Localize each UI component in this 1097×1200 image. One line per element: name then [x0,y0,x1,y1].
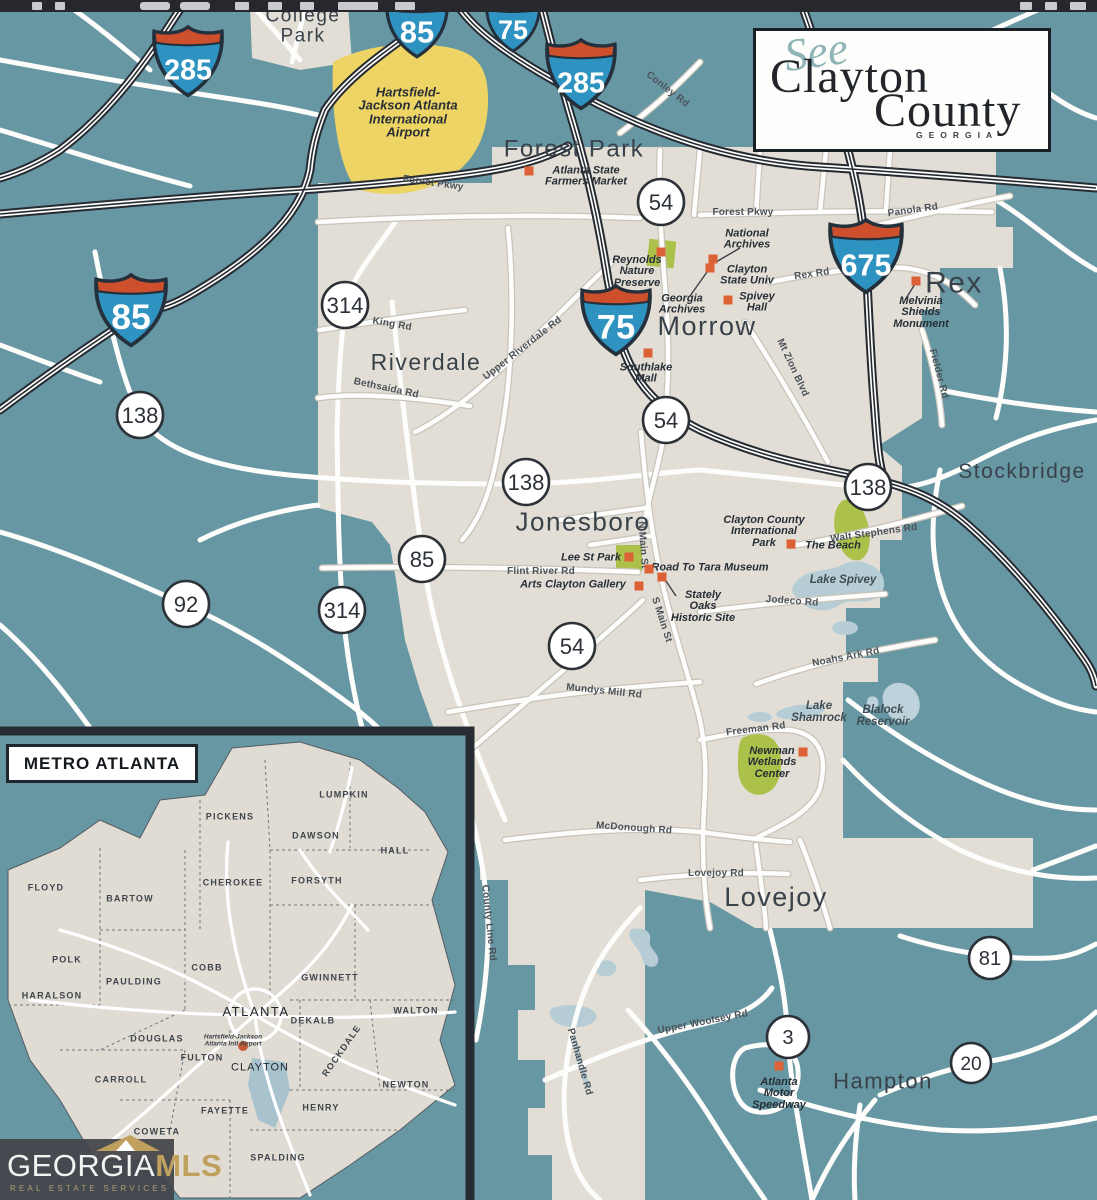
shield-number: 85 [111,297,151,337]
route-number: 20 [960,1054,981,1075]
inset-title: METRO ATLANTA [6,744,198,783]
state-route-shield-20: 20 [951,1043,991,1083]
status-icon [395,2,415,10]
interstate-shield-285: 285 [154,27,222,95]
status-icon [1020,2,1032,10]
clayton-county-logo: See Clayton County GEORGIA [753,28,1051,152]
brand-tagline: REAL ESTATE SERVICES [10,1184,169,1193]
state-route-shield-138: 138 [845,464,891,510]
state-route-shield-138: 138 [503,459,549,505]
lake-spivey-south [832,621,858,635]
status-icon [338,2,378,10]
state-route-shield-138: 138 [117,392,163,438]
shield-number: 75 [498,15,528,45]
shield-number: 285 [164,55,212,87]
route-number: 138 [850,475,887,500]
status-icon [32,2,42,10]
shield-number: 285 [557,68,605,100]
state-route-shield-3: 3 [767,1016,809,1058]
newman-wetlands-area [738,734,781,795]
inset-map [0,731,470,1200]
route-number: 92 [174,592,199,617]
route-number: 314 [324,598,361,623]
lake-shamrock-west [748,712,772,722]
route-number: 138 [122,403,159,428]
brand-name: GEORGIAMLS [7,1148,222,1184]
status-icon [235,2,249,10]
interstate-shield-285: 285 [547,40,615,108]
status-icon [55,2,65,10]
shield-number: 675 [841,248,892,282]
status-icon [180,2,210,10]
state-route-shield-314: 314 [322,282,368,328]
state-route-shield-54: 54 [549,623,595,669]
georgia-mls-logo: GEORGIAMLS REAL ESTATE SERVICES [0,1139,174,1200]
status-icon [300,2,314,10]
state-route-shield-314: 314 [319,587,365,633]
inset-airport-dot [238,1041,248,1051]
shield-number: 75 [597,309,635,347]
lee-st-park-area [616,545,642,571]
brand-georgia: GEORGIA [7,1148,155,1183]
status-icon [1045,2,1057,10]
logo-subtitle: GEORGIA [916,130,998,140]
brand-mls: MLS [155,1148,222,1183]
route-number: 81 [979,948,1001,970]
state-route-shield-54: 54 [638,179,684,225]
route-number: 54 [560,634,585,659]
state-route-shield-81: 81 [969,937,1011,979]
status-icon [1070,2,1086,10]
route-number: 85 [410,547,435,572]
route-number: 138 [508,470,545,495]
base-map: 2858575285675758554314138541381388592314… [0,0,1097,1200]
route-number: 54 [654,408,679,433]
state-route-shield-54: 54 [643,397,689,443]
state-route-shield-85: 85 [399,536,445,582]
route-number: 3 [782,1027,793,1049]
status-icon [140,2,170,10]
route-number: 314 [327,293,364,318]
state-route-shield-92: 92 [163,581,209,627]
interstate-shield-675: 675 [830,220,902,292]
status-icon [268,2,282,10]
route-number: 54 [649,190,674,215]
status-bar [0,0,1097,12]
shield-number: 85 [400,15,434,50]
map-screenshot: 2858575285675758554314138541381388592314… [0,0,1097,1200]
